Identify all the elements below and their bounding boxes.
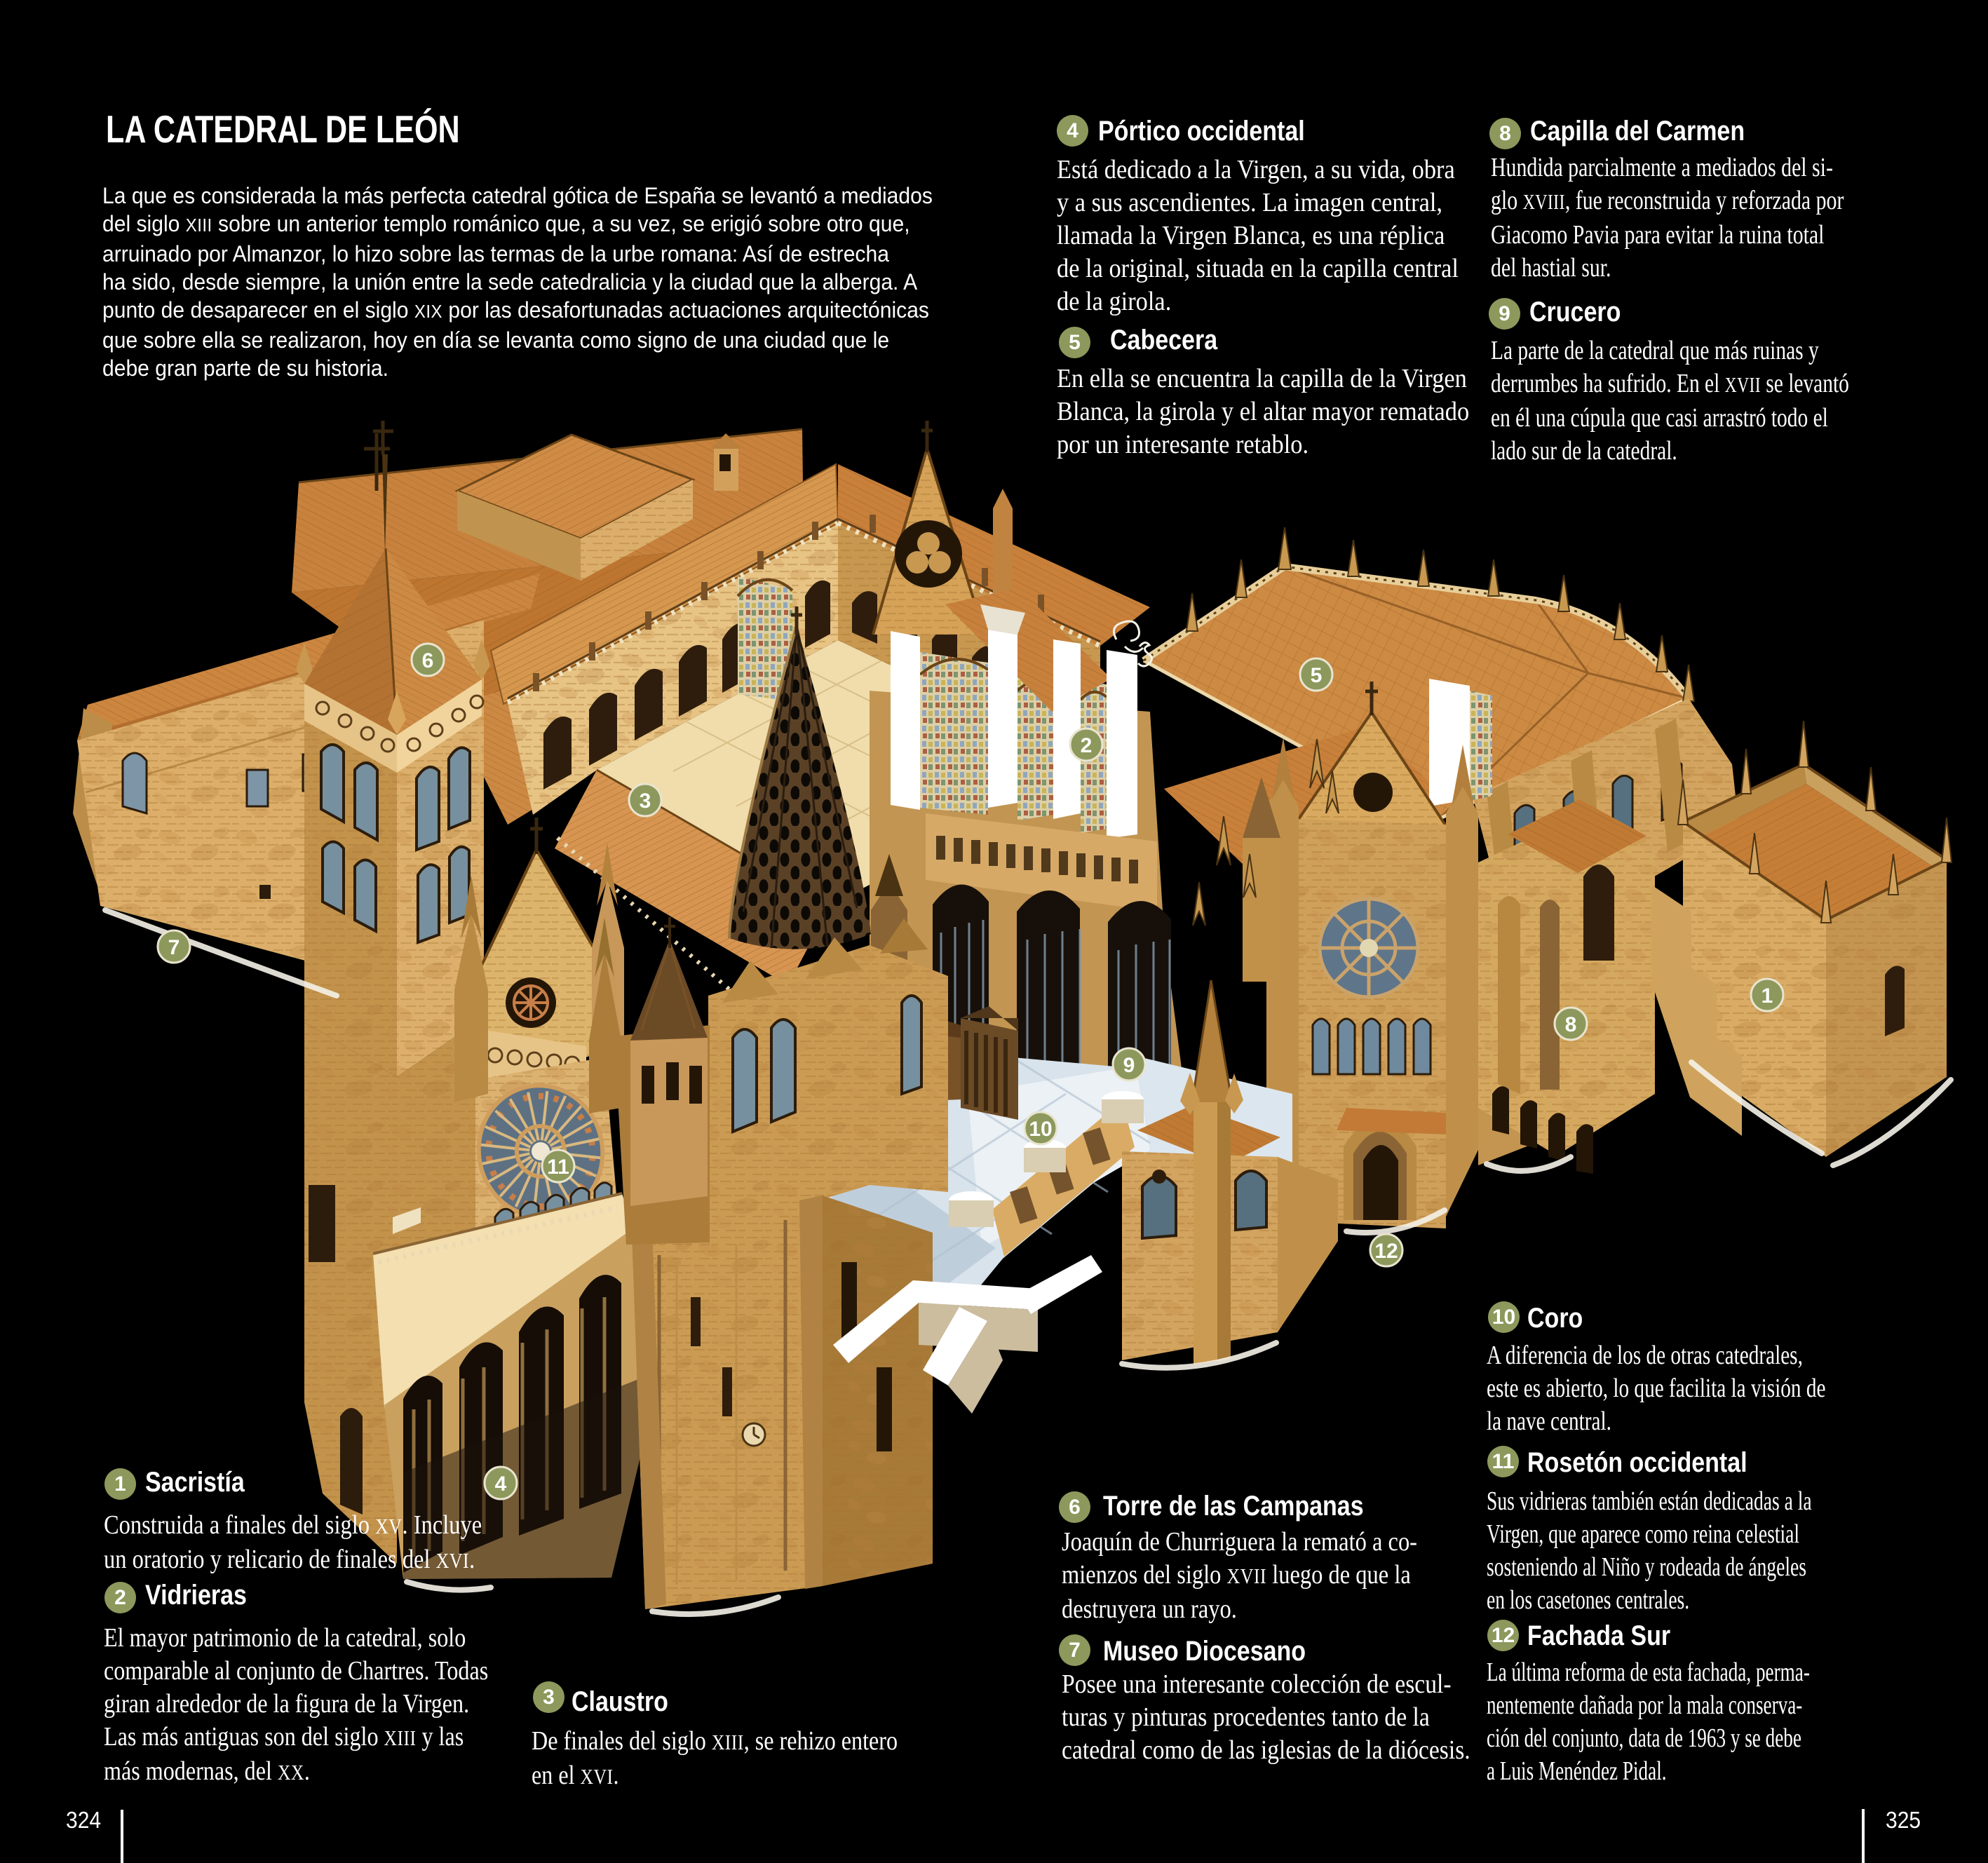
svg-text:7: 7 [168,936,180,959]
svg-text:2: 2 [1081,734,1093,757]
svg-text:11: 11 [547,1156,569,1179]
svg-text:8: 8 [1565,1013,1577,1036]
svg-text:6: 6 [422,649,434,672]
svg-text:3: 3 [640,790,651,813]
svg-text:10: 10 [1029,1118,1052,1141]
svg-text:9: 9 [1123,1054,1135,1077]
svg-text:12: 12 [1374,1240,1398,1263]
svg-text:5: 5 [1311,664,1323,687]
svg-text:1: 1 [1762,984,1773,1008]
svg-text:4: 4 [495,1472,507,1496]
